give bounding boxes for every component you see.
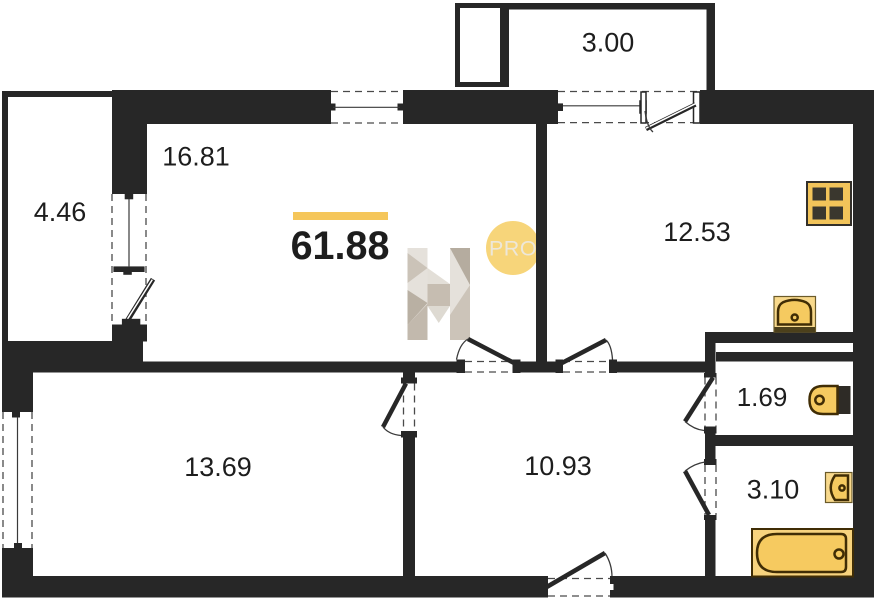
svg-text:1.69: 1.69 (737, 382, 788, 412)
svg-text:61.88: 61.88 (291, 224, 390, 268)
svg-text:12.53: 12.53 (663, 217, 731, 247)
svg-text:4.46: 4.46 (34, 197, 87, 227)
svg-text:13.69: 13.69 (184, 452, 252, 482)
svg-text:3.10: 3.10 (747, 475, 800, 505)
svg-text:PRO: PRO (489, 237, 537, 261)
svg-text:10.93: 10.93 (524, 451, 592, 481)
svg-text:3.00: 3.00 (582, 28, 635, 58)
svg-text:16.81: 16.81 (162, 142, 230, 172)
